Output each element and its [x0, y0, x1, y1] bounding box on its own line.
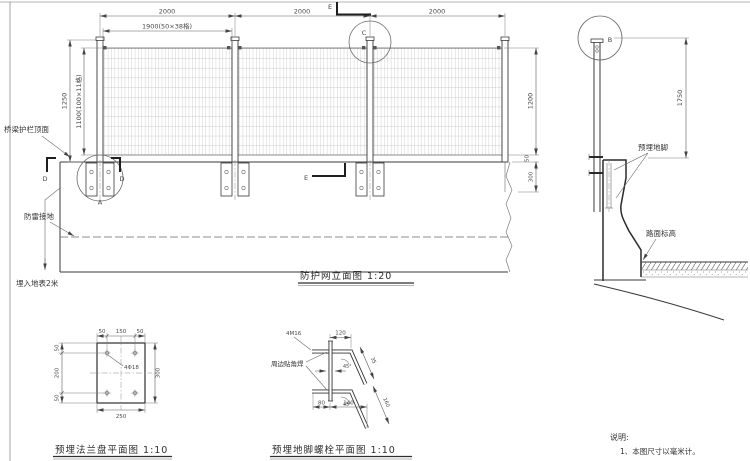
- flange-dim: 250: [116, 414, 127, 420]
- flange-title-block: 预埋法兰盘平面图 1:10: [53, 444, 172, 459]
- bolt-title: 预埋地脚螺栓平面图 1:10: [272, 444, 396, 456]
- bolt-dim: 35: [369, 356, 377, 364]
- rail-top-label: 桥梁护栏顶面: [4, 124, 49, 134]
- section-post: [589, 39, 603, 212]
- callout-b-label: B: [608, 36, 612, 44]
- dim-right-barrier: 300: [529, 171, 535, 182]
- road-level-annotation: 路面标高: [643, 228, 676, 260]
- dim-right-mesh: 1200: [527, 93, 535, 110]
- flange-dim: 50: [99, 329, 106, 335]
- barrier-section: [594, 160, 724, 320]
- bolt-labels: 4M16 周边贴角焊: [271, 331, 327, 390]
- flange-dim: 300: [156, 367, 162, 378]
- left-dimensions: 1250 1100(100×11格): [61, 40, 103, 162]
- drawing-svg: 2000 2000 2000 1900(50×38格) 1250 1100(10…: [0, 0, 750, 461]
- flange-dim: 50: [55, 394, 61, 401]
- break-line: [506, 162, 512, 272]
- flange-dim: 50: [55, 344, 61, 351]
- rail-top-annotation: 桥梁护栏顶面: [4, 124, 70, 157]
- angle-label: 45°: [343, 402, 352, 408]
- bolt-dim: 160: [381, 397, 390, 408]
- dim-right-gap: 50: [525, 155, 531, 162]
- callout-c-label: C: [362, 29, 367, 37]
- dim-section-height: 1750: [676, 90, 684, 107]
- flange-dim: 150: [116, 329, 127, 335]
- notes-block: 说明: 1、本图尺寸以毫米计。: [610, 432, 700, 456]
- engineering-drawing-sheet: 2000 2000 2000 1900(50×38格) 1250 1100(10…: [0, 0, 750, 461]
- dim-span-3: 2000: [429, 8, 446, 16]
- cut-e-label: E: [304, 174, 308, 182]
- right-dimensions: 1200 50 300: [504, 48, 539, 192]
- callout-a-label: A: [98, 199, 103, 207]
- base-plates: [86, 160, 505, 200]
- bolt-detail-view: 4M16 周边贴角焊 120 80 140 35: [270, 331, 412, 460]
- notes-heading: 说明:: [610, 432, 629, 442]
- flange-dim: 200: [55, 367, 61, 378]
- cut-e-label: E: [328, 3, 332, 11]
- bolt-spec-label: 4M16: [286, 331, 302, 337]
- section-dimension: 1750: [614, 38, 689, 158]
- anchor-label: 预埋地脚: [638, 142, 668, 152]
- weld-label: 周边贴角焊: [271, 359, 304, 368]
- embedded-anchor: [605, 160, 613, 212]
- base-plate: [86, 160, 114, 200]
- dim-mesh-width: 1900(50×38格): [142, 22, 192, 31]
- barrier-elevation: [60, 162, 512, 272]
- buried-label: 埋入地表2米: [16, 278, 59, 288]
- section-view: B 1750: [578, 16, 748, 320]
- dim-span-1: 2000: [159, 8, 176, 16]
- elevation-title: 防护网立面图 1:20: [300, 270, 392, 282]
- top-dimensions: 2000 2000 2000 1900(50×38格): [100, 8, 505, 46]
- base-plate: [356, 160, 384, 200]
- angle-label: 45°: [343, 364, 352, 370]
- dim-mesh-height: 1100(100×11格): [74, 74, 83, 128]
- girder-soffit-curve: [594, 284, 724, 320]
- anchor-annotation: 预埋地脚: [614, 142, 668, 198]
- flange-detail-view: 4Φ18 50 150 50 50 200 50: [53, 329, 172, 459]
- dim-height-outer: 1250: [61, 93, 69, 110]
- road-level-label: 路面标高: [646, 228, 676, 238]
- flange-edge-bar: [328, 341, 333, 401]
- base-plate: [221, 160, 249, 200]
- cut-d-label: D: [119, 175, 124, 183]
- mesh-panels: [103, 48, 502, 155]
- dim-span-2: 2000: [294, 8, 311, 16]
- road-surface: [641, 262, 748, 277]
- grounding-label: 防雷接地: [24, 211, 54, 221]
- flange-title: 预埋法兰盘平面图 1:10: [55, 444, 168, 456]
- bolt-top-dim: 120: [330, 331, 351, 349]
- bolt-title-block: 预埋地脚螺栓平面图 1:10: [270, 444, 412, 459]
- notes-item-1: 1、本图尺寸以毫米计。: [620, 446, 700, 456]
- flange-dim: 50: [137, 329, 144, 335]
- anchor-bolts: [312, 352, 367, 429]
- cut-d-label: D: [42, 175, 47, 183]
- elevation-view: 2000 2000 2000 1900(50×38格) 1250 1100(10…: [4, 2, 539, 288]
- bolt-dim: 120: [335, 331, 346, 337]
- bolt-dim: 80: [318, 401, 325, 407]
- grounding-annotation: 防雷接地: [24, 188, 74, 270]
- bolt-slant-dims: 35 160: [360, 347, 391, 424]
- hole-spec-label: 4Φ18: [124, 365, 139, 371]
